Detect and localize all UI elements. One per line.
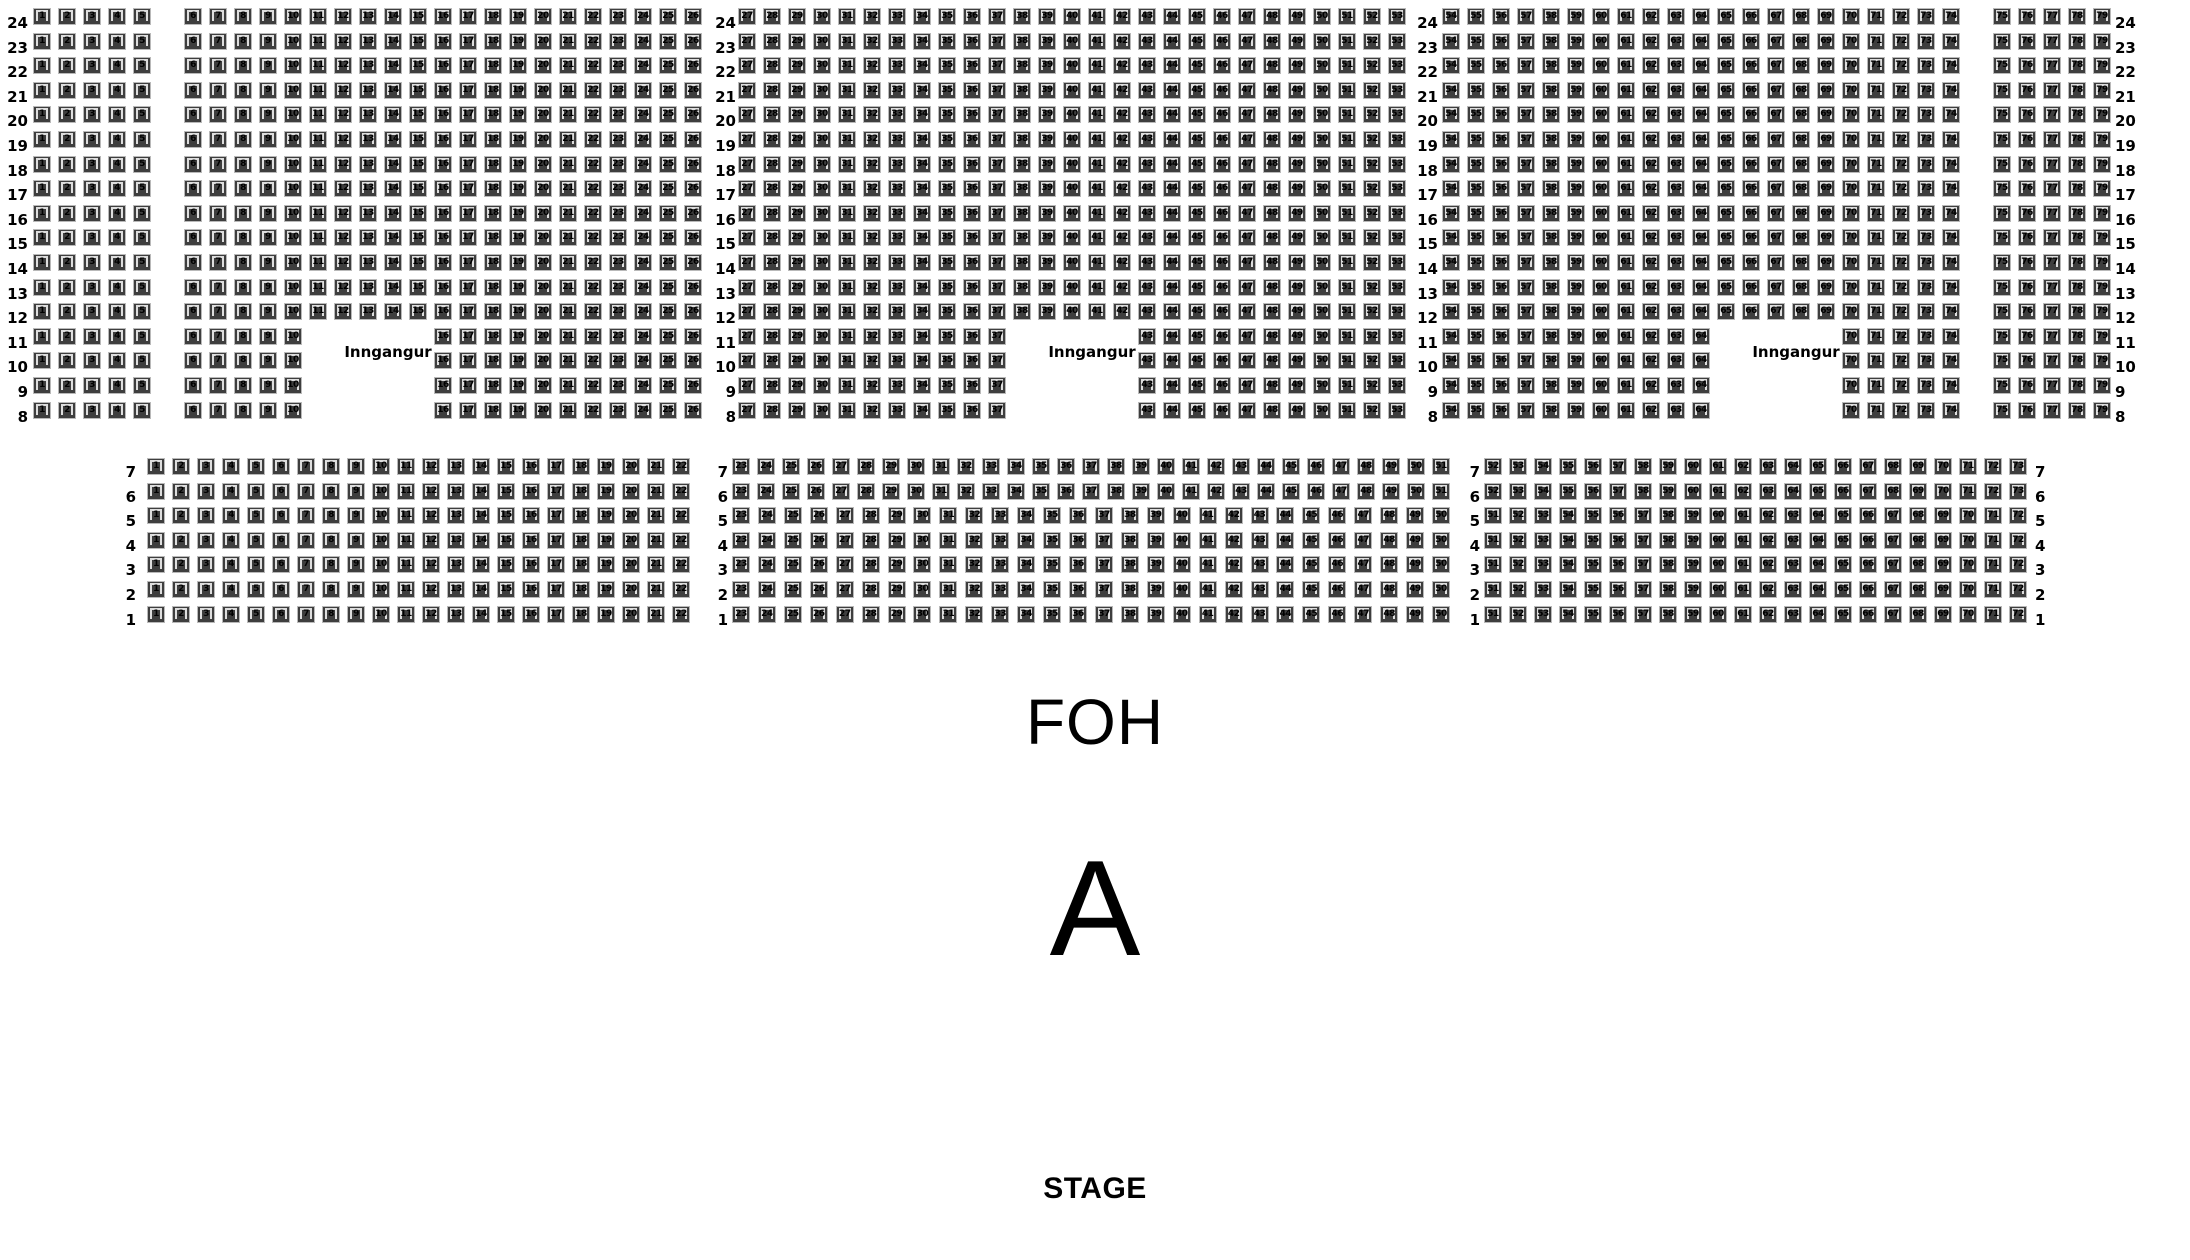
seat[interactable]: 59 (1567, 328, 1585, 345)
seat[interactable]: 15 (409, 205, 427, 222)
seat[interactable]: 73 (1917, 352, 1935, 369)
seat[interactable]: 75 (1993, 229, 2011, 246)
seat[interactable]: 56 (1492, 8, 1510, 25)
seat[interactable]: 32 (863, 82, 881, 99)
seat[interactable]: 38 (1121, 556, 1139, 573)
seat[interactable]: 16 (434, 279, 452, 296)
seat[interactable]: 55 (1584, 581, 1602, 598)
seat[interactable]: 11 (309, 254, 327, 271)
seat[interactable]: 75 (1993, 279, 2011, 296)
seat[interactable]: 4 (108, 229, 126, 246)
seat[interactable]: 35 (1043, 606, 1061, 623)
seat[interactable]: 50 (1313, 33, 1331, 50)
seat[interactable]: 8 (234, 254, 252, 271)
seat[interactable]: 17 (459, 82, 477, 99)
seat[interactable]: 3 (83, 8, 101, 25)
seat[interactable]: 57 (1609, 483, 1627, 500)
seat[interactable]: 74 (1942, 352, 1960, 369)
seat[interactable]: 30 (907, 458, 925, 475)
seat[interactable]: 8 (234, 279, 252, 296)
seat[interactable]: 37 (988, 328, 1006, 345)
seat[interactable]: 22 (672, 507, 690, 524)
seat[interactable]: 58 (1659, 581, 1677, 598)
seat[interactable]: 30 (813, 82, 831, 99)
seat[interactable]: 30 (813, 156, 831, 173)
seat[interactable]: 7 (297, 581, 315, 598)
seat[interactable]: 10 (284, 303, 302, 320)
seat[interactable]: 46 (1213, 57, 1231, 74)
seat[interactable]: 71 (1867, 57, 1885, 74)
seat[interactable]: 60 (1592, 131, 1610, 148)
seat[interactable]: 45 (1302, 581, 1320, 598)
seat[interactable]: 46 (1213, 180, 1231, 197)
seat[interactable]: 68 (1909, 581, 1927, 598)
seat[interactable]: 4 (108, 180, 126, 197)
seat[interactable]: 12 (422, 507, 440, 524)
seat[interactable]: 35 (938, 8, 956, 25)
seat[interactable]: 31 (838, 303, 856, 320)
seat[interactable]: 4 (108, 33, 126, 50)
seat[interactable]: 24 (634, 402, 652, 419)
seat[interactable]: 58 (1634, 483, 1652, 500)
seat[interactable]: 16 (434, 229, 452, 246)
seat[interactable]: 70 (1959, 507, 1977, 524)
seat[interactable]: 53 (1534, 532, 1552, 549)
seat[interactable]: 65 (1834, 606, 1852, 623)
seat[interactable]: 52 (1363, 57, 1381, 74)
seat[interactable]: 33 (888, 33, 906, 50)
seat[interactable]: 23 (609, 33, 627, 50)
seat[interactable]: 33 (991, 532, 1009, 549)
seat[interactable]: 66 (1742, 205, 1760, 222)
seat[interactable]: 55 (1467, 254, 1485, 271)
seat[interactable]: 8 (234, 82, 252, 99)
seat[interactable]: 25 (782, 458, 800, 475)
seat[interactable]: 68 (1792, 279, 1810, 296)
seat[interactable]: 17 (459, 106, 477, 123)
seat[interactable]: 54 (1442, 254, 1460, 271)
seat[interactable]: 2 (58, 328, 76, 345)
seat[interactable]: 73 (1917, 82, 1935, 99)
seat[interactable]: 56 (1609, 606, 1627, 623)
seat[interactable]: 44 (1257, 483, 1275, 500)
seat[interactable]: 79 (2093, 254, 2111, 271)
seat[interactable]: 32 (863, 328, 881, 345)
seat[interactable]: 32 (863, 8, 881, 25)
seat[interactable]: 29 (788, 131, 806, 148)
seat[interactable]: 55 (1584, 556, 1602, 573)
seat[interactable]: 74 (1942, 82, 1960, 99)
seat[interactable]: 44 (1163, 352, 1181, 369)
seat[interactable]: 59 (1684, 581, 1702, 598)
seat[interactable]: 24 (634, 205, 652, 222)
seat[interactable]: 61 (1734, 606, 1752, 623)
seat[interactable]: 25 (659, 303, 677, 320)
seat[interactable]: 21 (559, 106, 577, 123)
seat[interactable]: 57 (1517, 57, 1535, 74)
seat[interactable]: 12 (422, 606, 440, 623)
seat[interactable]: 30 (813, 352, 831, 369)
seat[interactable]: 36 (963, 328, 981, 345)
seat[interactable]: 39 (1038, 131, 1056, 148)
seat[interactable]: 12 (334, 8, 352, 25)
seat[interactable]: 12 (422, 483, 440, 500)
seat[interactable]: 76 (2018, 33, 2036, 50)
seat[interactable]: 7 (209, 33, 227, 50)
seat[interactable]: 17 (547, 458, 565, 475)
seat[interactable]: 33 (888, 57, 906, 74)
seat[interactable]: 21 (559, 205, 577, 222)
seat[interactable]: 37 (1095, 532, 1113, 549)
seat[interactable]: 36 (963, 180, 981, 197)
seat[interactable]: 40 (1173, 532, 1191, 549)
seat[interactable]: 3 (197, 606, 215, 623)
seat[interactable]: 1 (33, 205, 51, 222)
seat[interactable]: 10 (284, 328, 302, 345)
seat[interactable]: 61 (1617, 8, 1635, 25)
seat[interactable]: 65 (1717, 131, 1735, 148)
seat[interactable]: 74 (1942, 402, 1960, 419)
seat[interactable]: 23 (609, 328, 627, 345)
seat[interactable]: 48 (1263, 254, 1281, 271)
seat[interactable]: 26 (684, 303, 702, 320)
seat[interactable]: 46 (1213, 131, 1231, 148)
seat[interactable]: 62 (1642, 377, 1660, 394)
seat[interactable]: 26 (684, 156, 702, 173)
seat[interactable]: 79 (2093, 8, 2111, 25)
seat[interactable]: 27 (836, 532, 854, 549)
seat[interactable]: 23 (732, 483, 750, 500)
seat[interactable]: 23 (609, 303, 627, 320)
seat[interactable]: 63 (1784, 556, 1802, 573)
seat[interactable]: 62 (1642, 352, 1660, 369)
seat[interactable]: 6 (272, 507, 290, 524)
seat[interactable]: 62 (1759, 507, 1777, 524)
seat[interactable]: 37 (988, 229, 1006, 246)
seat[interactable]: 58 (1542, 254, 1560, 271)
seat[interactable]: 28 (763, 180, 781, 197)
seat[interactable]: 79 (2093, 131, 2111, 148)
seat[interactable]: 63 (1667, 180, 1685, 197)
seat[interactable]: 79 (2093, 229, 2111, 246)
seat[interactable]: 16 (434, 352, 452, 369)
seat[interactable]: 2 (58, 33, 76, 50)
seat[interactable]: 25 (659, 8, 677, 25)
seat[interactable]: 21 (559, 82, 577, 99)
seat[interactable]: 71 (1867, 8, 1885, 25)
seat[interactable]: 27 (836, 581, 854, 598)
seat[interactable]: 33 (982, 458, 1000, 475)
seat[interactable]: 59 (1567, 131, 1585, 148)
seat[interactable]: 28 (763, 106, 781, 123)
seat[interactable]: 74 (1942, 328, 1960, 345)
seat[interactable]: 55 (1467, 180, 1485, 197)
seat[interactable]: 43 (1138, 229, 1156, 246)
seat[interactable]: 62 (1642, 57, 1660, 74)
seat[interactable]: 12 (422, 556, 440, 573)
seat[interactable]: 55 (1584, 532, 1602, 549)
seat[interactable]: 34 (913, 8, 931, 25)
seat[interactable]: 41 (1199, 556, 1217, 573)
seat[interactable]: 33 (888, 254, 906, 271)
seat[interactable]: 45 (1188, 180, 1206, 197)
seat[interactable]: 55 (1467, 205, 1485, 222)
seat[interactable]: 75 (1993, 106, 2011, 123)
seat[interactable]: 52 (1509, 532, 1527, 549)
seat[interactable]: 77 (2043, 106, 2061, 123)
seat[interactable]: 72 (1892, 328, 1910, 345)
seat[interactable]: 34 (913, 106, 931, 123)
seat[interactable]: 77 (2043, 180, 2061, 197)
seat[interactable]: 40 (1063, 180, 1081, 197)
seat[interactable]: 33 (888, 303, 906, 320)
seat[interactable]: 14 (384, 57, 402, 74)
seat[interactable]: 70 (1842, 352, 1860, 369)
seat[interactable]: 25 (659, 229, 677, 246)
seat[interactable]: 39 (1132, 483, 1150, 500)
seat[interactable]: 53 (1534, 556, 1552, 573)
seat[interactable]: 11 (309, 303, 327, 320)
seat[interactable]: 30 (913, 507, 931, 524)
seat[interactable]: 62 (1642, 106, 1660, 123)
seat[interactable]: 12 (334, 279, 352, 296)
seat[interactable]: 35 (938, 229, 956, 246)
seat[interactable]: 31 (838, 229, 856, 246)
seat[interactable]: 38 (1013, 180, 1031, 197)
seat[interactable]: 55 (1467, 352, 1485, 369)
seat[interactable]: 6 (272, 606, 290, 623)
seat[interactable]: 78 (2068, 254, 2086, 271)
seat[interactable]: 10 (284, 377, 302, 394)
seat[interactable]: 40 (1063, 82, 1081, 99)
seat[interactable]: 54 (1442, 402, 1460, 419)
seat[interactable]: 49 (1406, 532, 1424, 549)
seat[interactable]: 76 (2018, 229, 2036, 246)
seat[interactable]: 35 (938, 352, 956, 369)
seat[interactable]: 16 (434, 180, 452, 197)
seat[interactable]: 41 (1088, 279, 1106, 296)
seat[interactable]: 79 (2093, 402, 2111, 419)
seat[interactable]: 58 (1542, 106, 1560, 123)
seat[interactable]: 36 (963, 106, 981, 123)
seat[interactable]: 1 (33, 377, 51, 394)
seat[interactable]: 11 (309, 106, 327, 123)
seat[interactable]: 37 (1095, 556, 1113, 573)
seat[interactable]: 7 (297, 556, 315, 573)
seat[interactable]: 44 (1276, 581, 1294, 598)
seat[interactable]: 1 (147, 606, 165, 623)
seat[interactable]: 65 (1717, 57, 1735, 74)
seat[interactable]: 41 (1199, 507, 1217, 524)
seat[interactable]: 78 (2068, 229, 2086, 246)
seat[interactable]: 11 (309, 156, 327, 173)
seat[interactable]: 32 (957, 483, 975, 500)
seat[interactable]: 6 (184, 57, 202, 74)
seat[interactable]: 76 (2018, 82, 2036, 99)
seat[interactable]: 58 (1542, 57, 1560, 74)
seat[interactable]: 45 (1188, 82, 1206, 99)
seat[interactable]: 41 (1199, 532, 1217, 549)
seat[interactable]: 13 (447, 507, 465, 524)
seat[interactable]: 56 (1492, 352, 1510, 369)
seat[interactable]: 57 (1517, 180, 1535, 197)
seat[interactable]: 21 (559, 254, 577, 271)
seat[interactable]: 19 (509, 303, 527, 320)
seat[interactable]: 44 (1163, 8, 1181, 25)
seat[interactable]: 57 (1517, 229, 1535, 246)
seat[interactable]: 31 (838, 377, 856, 394)
seat[interactable]: 69 (1817, 205, 1835, 222)
seat[interactable]: 28 (763, 377, 781, 394)
seat[interactable]: 22 (672, 532, 690, 549)
seat[interactable]: 76 (2018, 352, 2036, 369)
seat[interactable]: 51 (1338, 131, 1356, 148)
seat[interactable]: 20 (622, 507, 640, 524)
seat[interactable]: 20 (622, 458, 640, 475)
seat[interactable]: 14 (472, 532, 490, 549)
seat[interactable]: 79 (2093, 328, 2111, 345)
seat[interactable]: 44 (1276, 532, 1294, 549)
seat[interactable]: 2 (58, 180, 76, 197)
seat[interactable]: 14 (384, 156, 402, 173)
seat[interactable]: 34 (913, 352, 931, 369)
seat[interactable]: 26 (810, 507, 828, 524)
seat[interactable]: 9 (259, 352, 277, 369)
seat[interactable]: 73 (1917, 8, 1935, 25)
seat[interactable]: 40 (1173, 507, 1191, 524)
seat[interactable]: 46 (1328, 507, 1346, 524)
seat[interactable]: 62 (1642, 8, 1660, 25)
seat[interactable]: 44 (1163, 303, 1181, 320)
seat[interactable]: 28 (763, 8, 781, 25)
seat[interactable]: 71 (1867, 33, 1885, 50)
seat[interactable]: 7 (209, 402, 227, 419)
seat[interactable]: 71 (1867, 402, 1885, 419)
seat[interactable]: 51 (1338, 57, 1356, 74)
seat[interactable]: 21 (647, 507, 665, 524)
seat[interactable]: 10 (372, 507, 390, 524)
seat[interactable]: 47 (1354, 556, 1372, 573)
seat[interactable]: 35 (938, 82, 956, 99)
seat[interactable]: 3 (83, 131, 101, 148)
seat[interactable]: 53 (1388, 106, 1406, 123)
seat[interactable]: 65 (1809, 458, 1827, 475)
seat[interactable]: 72 (1892, 131, 1910, 148)
seat[interactable]: 68 (1792, 131, 1810, 148)
seat[interactable]: 34 (913, 156, 931, 173)
seat[interactable]: 62 (1642, 402, 1660, 419)
seat[interactable]: 5 (247, 581, 265, 598)
seat[interactable]: 37 (988, 254, 1006, 271)
seat[interactable]: 31 (939, 532, 957, 549)
seat[interactable]: 9 (259, 279, 277, 296)
seat[interactable]: 30 (813, 131, 831, 148)
seat[interactable]: 55 (1467, 8, 1485, 25)
seat[interactable]: 7 (297, 483, 315, 500)
seat[interactable]: 25 (784, 556, 802, 573)
seat[interactable]: 62 (1642, 131, 1660, 148)
seat[interactable]: 3 (197, 532, 215, 549)
seat[interactable]: 78 (2068, 205, 2086, 222)
seat[interactable]: 58 (1542, 229, 1560, 246)
seat[interactable]: 39 (1132, 458, 1150, 475)
seat[interactable]: 65 (1717, 82, 1735, 99)
seat[interactable]: 25 (784, 532, 802, 549)
seat[interactable]: 40 (1157, 483, 1175, 500)
seat[interactable]: 19 (509, 352, 527, 369)
seat[interactable]: 58 (1542, 377, 1560, 394)
seat[interactable]: 58 (1659, 532, 1677, 549)
seat[interactable]: 42 (1113, 254, 1131, 271)
seat[interactable]: 23 (732, 606, 750, 623)
seat[interactable]: 40 (1063, 254, 1081, 271)
seat[interactable]: 73 (1917, 279, 1935, 296)
seat[interactable]: 27 (738, 205, 756, 222)
seat[interactable]: 69 (1934, 581, 1952, 598)
seat[interactable]: 34 (913, 402, 931, 419)
seat[interactable]: 32 (863, 205, 881, 222)
seat[interactable]: 47 (1238, 205, 1256, 222)
seat[interactable]: 61 (1617, 229, 1635, 246)
seat[interactable]: 78 (2068, 82, 2086, 99)
seat[interactable]: 19 (509, 254, 527, 271)
seat[interactable]: 32 (965, 532, 983, 549)
seat[interactable]: 5 (247, 532, 265, 549)
seat[interactable]: 32 (863, 377, 881, 394)
seat[interactable]: 10 (372, 581, 390, 598)
seat[interactable]: 44 (1163, 279, 1181, 296)
seat[interactable]: 37 (988, 131, 1006, 148)
seat[interactable]: 5 (133, 131, 151, 148)
seat[interactable]: 20 (534, 328, 552, 345)
seat[interactable]: 29 (888, 581, 906, 598)
seat[interactable]: 56 (1492, 229, 1510, 246)
seat[interactable]: 23 (609, 254, 627, 271)
seat[interactable]: 75 (1993, 33, 2011, 50)
seat[interactable]: 49 (1288, 352, 1306, 369)
seat[interactable]: 14 (384, 303, 402, 320)
seat[interactable]: 37 (988, 106, 1006, 123)
seat[interactable]: 24 (634, 131, 652, 148)
seat[interactable]: 57 (1517, 156, 1535, 173)
seat[interactable]: 64 (1809, 581, 1827, 598)
seat[interactable]: 46 (1213, 205, 1231, 222)
seat[interactable]: 66 (1742, 33, 1760, 50)
seat[interactable]: 52 (1509, 507, 1527, 524)
seat[interactable]: 43 (1138, 57, 1156, 74)
seat[interactable]: 28 (763, 229, 781, 246)
seat[interactable]: 8 (234, 328, 252, 345)
seat[interactable]: 59 (1567, 402, 1585, 419)
seat[interactable]: 28 (763, 402, 781, 419)
seat[interactable]: 51 (1338, 254, 1356, 271)
seat[interactable]: 79 (2093, 57, 2111, 74)
seat[interactable]: 79 (2093, 180, 2111, 197)
seat[interactable]: 6 (184, 205, 202, 222)
seat[interactable]: 74 (1942, 131, 1960, 148)
seat[interactable]: 53 (1388, 229, 1406, 246)
seat[interactable]: 36 (1069, 581, 1087, 598)
seat[interactable]: 39 (1038, 106, 1056, 123)
seat[interactable]: 33 (888, 229, 906, 246)
seat[interactable]: 42 (1113, 229, 1131, 246)
seat[interactable]: 74 (1942, 8, 1960, 25)
seat[interactable]: 22 (584, 279, 602, 296)
seat[interactable]: 47 (1238, 229, 1256, 246)
seat[interactable]: 46 (1328, 556, 1346, 573)
seat[interactable]: 50 (1313, 156, 1331, 173)
seat[interactable]: 36 (963, 229, 981, 246)
